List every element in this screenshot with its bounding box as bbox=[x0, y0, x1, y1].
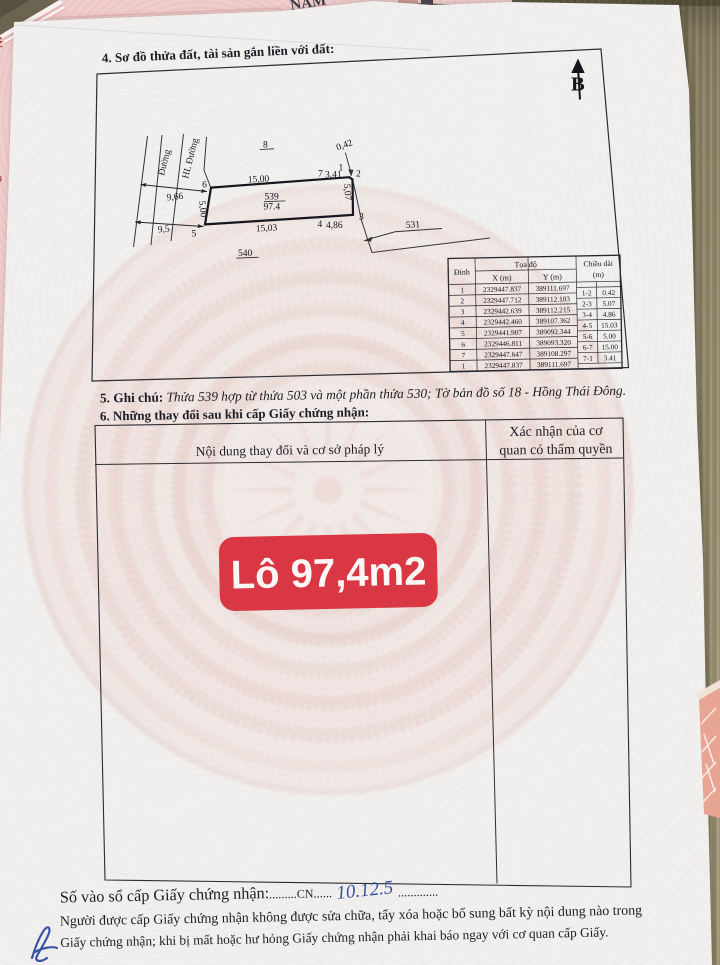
svg-text:Lô 97,4m2: Lô 97,4m2 bbox=[230, 549, 427, 597]
svg-text:97.4: 97.4 bbox=[264, 203, 281, 213]
svg-text:9,5: 9,5 bbox=[157, 224, 170, 235]
svg-text:2329442.460: 2329442.460 bbox=[483, 317, 522, 327]
svg-text:4. Sơ đồ thửa đất, tài sản gắn: 4. Sơ đồ thửa đất, tài sản gắn liền với … bbox=[101, 41, 334, 66]
svg-text:Chiều dài: Chiều dài bbox=[583, 259, 612, 269]
svg-text:7-1: 7-1 bbox=[583, 354, 593, 363]
svg-text:9,66: 9,66 bbox=[166, 192, 184, 204]
svg-text:X (m): X (m) bbox=[492, 273, 512, 282]
svg-text:1: 1 bbox=[339, 164, 344, 174]
svg-text:4: 4 bbox=[461, 318, 465, 327]
svg-text:6. Những thay đổi sau khi cấp: 6. Những thay đổi sau khi cấp Giấy chứng… bbox=[100, 404, 369, 423]
svg-text:Số vào sổ cấp Giấy chứng nhận:: Số vào sổ cấp Giấy chứng nhận: bbox=[60, 884, 270, 906]
svg-text:15,03: 15,03 bbox=[256, 223, 278, 234]
svg-text:4.86: 4.86 bbox=[603, 310, 616, 319]
svg-text:2: 2 bbox=[356, 170, 361, 180]
svg-text:1: 1 bbox=[460, 285, 464, 294]
svg-text:2329447.837: 2329447.837 bbox=[483, 284, 522, 294]
svg-text:(m): (m) bbox=[593, 270, 605, 279]
svg-text:Nội dung thay đổi và cơ sở phá: Nội dung thay đổi và cơ sở pháp lý bbox=[196, 441, 385, 459]
svg-text:389108.297: 389108.297 bbox=[536, 349, 571, 359]
svg-text:1: 1 bbox=[462, 361, 466, 370]
svg-text:6-7: 6-7 bbox=[583, 343, 593, 352]
svg-text:2329447.712: 2329447.712 bbox=[483, 295, 522, 305]
svg-text:Xác nhận của cơ: Xác nhận của cơ bbox=[509, 424, 603, 440]
svg-text:2329442.639: 2329442.639 bbox=[483, 306, 522, 316]
svg-text:.........CN......: .........CN...... bbox=[269, 886, 332, 901]
svg-text:5.07: 5.07 bbox=[602, 299, 615, 308]
svg-text:531: 531 bbox=[406, 220, 421, 231]
svg-text:2329447.647: 2329447.647 bbox=[484, 350, 523, 360]
svg-text:15,00: 15,00 bbox=[248, 174, 270, 185]
svg-text:4,86: 4,86 bbox=[326, 221, 343, 231]
svg-text:1-2: 1-2 bbox=[582, 288, 592, 297]
svg-text:5-6: 5-6 bbox=[583, 332, 593, 341]
svg-text:6: 6 bbox=[461, 340, 465, 349]
svg-text:7: 7 bbox=[461, 351, 465, 360]
svg-text:2329447.837: 2329447.837 bbox=[484, 360, 523, 370]
svg-text:4-5: 4-5 bbox=[582, 321, 592, 330]
svg-text:15.03: 15.03 bbox=[601, 320, 618, 329]
svg-text:5: 5 bbox=[461, 329, 465, 338]
svg-text:HL Đường: HL Đường bbox=[181, 137, 201, 180]
svg-text:6: 6 bbox=[202, 181, 207, 191]
svg-text:389107.362: 389107.362 bbox=[536, 316, 571, 326]
svg-text:5. Ghi chú: Thửa 539 hợp từ th: 5. Ghi chú: Thửa 539 hợp từ thửa 503 và … bbox=[100, 383, 626, 406]
svg-text:Đỉnh: Đỉnh bbox=[454, 268, 470, 277]
svg-text:5,07: 5,07 bbox=[341, 183, 352, 201]
svg-text:389111.697: 389111.697 bbox=[537, 359, 572, 369]
svg-text:3: 3 bbox=[359, 213, 364, 223]
svg-text:7: 7 bbox=[318, 170, 323, 180]
svg-text:Giấy chứng nhận; khi bị mất ho: Giấy chứng nhận; khi bị mất hoặc hư hỏng… bbox=[60, 924, 608, 950]
svg-text:15.00: 15.00 bbox=[601, 342, 618, 351]
svg-text:389093.320: 389093.320 bbox=[536, 338, 571, 348]
svg-text:4: 4 bbox=[318, 220, 323, 230]
svg-text:5: 5 bbox=[192, 230, 197, 240]
svg-text:B: B bbox=[571, 74, 585, 96]
svg-text:3: 3 bbox=[461, 307, 465, 316]
svg-text:389111.697: 389111.697 bbox=[535, 283, 570, 293]
svg-text:0.42: 0.42 bbox=[602, 288, 615, 297]
svg-text:2329446.811: 2329446.811 bbox=[484, 339, 523, 349]
svg-text:.............: ............. bbox=[398, 885, 439, 900]
svg-text:2: 2 bbox=[460, 296, 464, 305]
svg-text:Đường: Đường bbox=[157, 148, 173, 176]
svg-text:3-4: 3-4 bbox=[582, 310, 592, 319]
svg-text:389092.344: 389092.344 bbox=[536, 327, 571, 337]
svg-text:Y (m): Y (m) bbox=[543, 272, 563, 281]
svg-text:10.12.5: 10.12.5 bbox=[335, 877, 394, 904]
svg-text:389112.103: 389112.103 bbox=[536, 294, 571, 304]
svg-text:5,00: 5,00 bbox=[196, 200, 208, 218]
svg-text:0,42: 0,42 bbox=[335, 138, 354, 153]
svg-text:5.00: 5.00 bbox=[603, 331, 616, 340]
svg-text:2329441.907: 2329441.907 bbox=[484, 328, 523, 338]
svg-text:389112.215: 389112.215 bbox=[536, 305, 571, 315]
svg-text:quan có thẩm quyền: quan có thẩm quyền bbox=[499, 442, 612, 459]
svg-text:3.41: 3.41 bbox=[603, 353, 616, 362]
svg-text:2-3: 2-3 bbox=[582, 299, 592, 308]
svg-text:Tọa độ: Tọa độ bbox=[514, 260, 537, 269]
